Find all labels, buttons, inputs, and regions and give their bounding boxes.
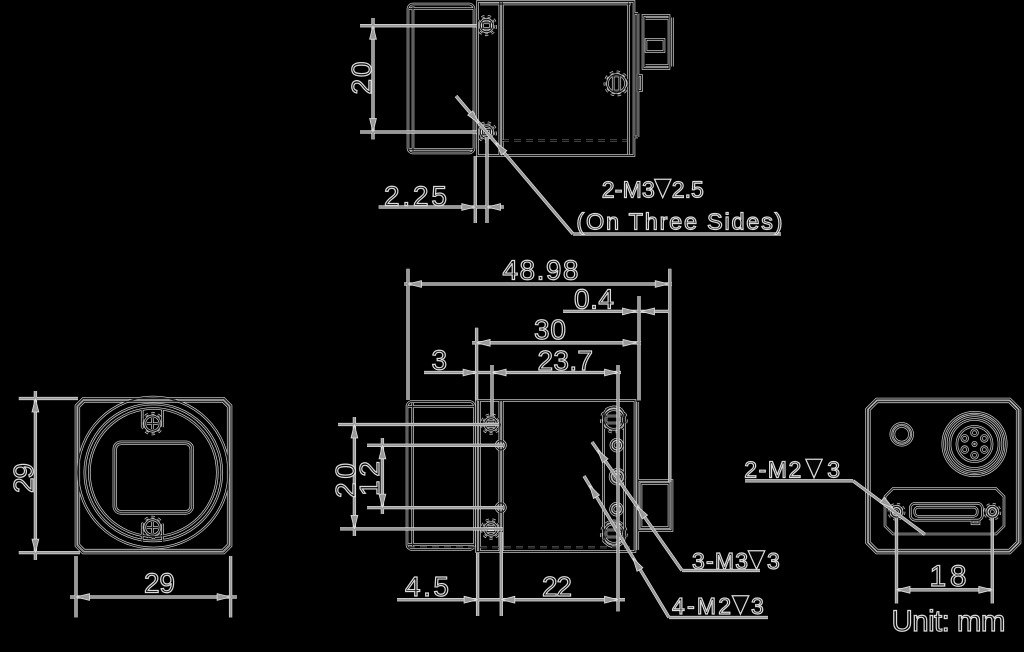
- svg-text:3-M3: 3-M3: [692, 548, 748, 574]
- svg-text:2-M2: 2-M2: [744, 457, 801, 483]
- svg-text:0.4: 0.4: [574, 284, 614, 315]
- svg-text:30: 30: [534, 314, 566, 345]
- svg-text:2.25: 2.25: [384, 181, 447, 212]
- svg-text:4.5: 4.5: [405, 571, 449, 602]
- svg-text:29: 29: [144, 568, 175, 599]
- svg-text:48.98: 48.98: [503, 255, 579, 286]
- svg-text:2-M3: 2-M3: [602, 176, 655, 202]
- svg-text:23.7: 23.7: [538, 345, 594, 376]
- svg-text:3: 3: [432, 345, 448, 376]
- svg-text:(On Three Sides): (On Three Sides): [576, 209, 782, 235]
- svg-text:4-M2: 4-M2: [672, 593, 731, 619]
- svg-text:3: 3: [767, 548, 780, 574]
- svg-text:2.5: 2.5: [672, 176, 704, 202]
- svg-text:3: 3: [827, 457, 840, 483]
- svg-text:29: 29: [8, 463, 39, 493]
- svg-text:20: 20: [346, 62, 377, 95]
- svg-text:22: 22: [542, 571, 572, 602]
- svg-text:Unit: mm: Unit: mm: [892, 605, 1006, 638]
- svg-text:3: 3: [751, 593, 764, 619]
